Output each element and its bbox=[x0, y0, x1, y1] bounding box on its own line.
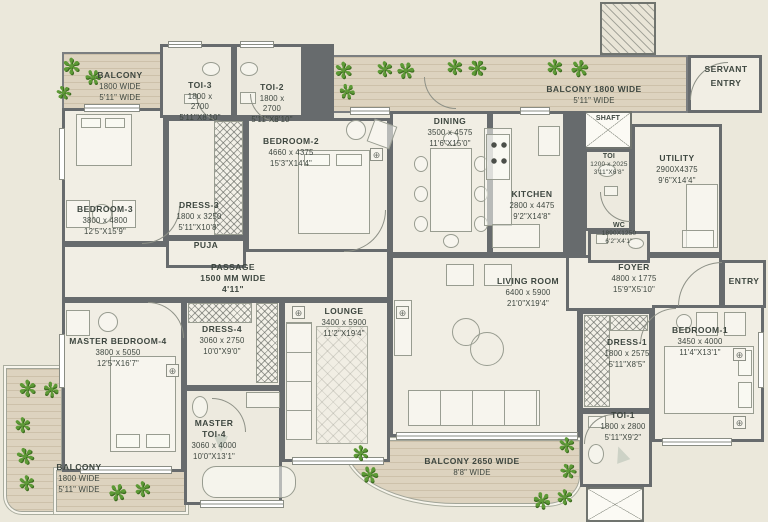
utility-point-icon: ⊕ bbox=[370, 148, 383, 161]
label-entry: ENTRY bbox=[724, 276, 764, 287]
window bbox=[59, 128, 65, 180]
label-dress-1: DRESS-1 1800 x 2575 5'11"X8'5" bbox=[590, 337, 664, 370]
kitchen-counter-icon bbox=[492, 224, 540, 248]
rug-icon bbox=[316, 326, 368, 444]
wardrobe-icon bbox=[188, 303, 252, 323]
label-bedroom-2: BEDROOM-2 4660 x 4375 15'3"X14'4" bbox=[250, 136, 332, 169]
label-bedroom-3: BEDROOM-3 3800 x 4800 12'5"X15'9" bbox=[58, 204, 152, 237]
label-balcony-top: BALCONY 1800 WIDE 5'11" WIDE bbox=[534, 84, 654, 106]
label-toi-3: TOI-3 1800 x 2700 5'11"X8'10" bbox=[178, 80, 222, 123]
wc-icon bbox=[202, 62, 220, 76]
sofa-icon bbox=[286, 322, 312, 440]
side-table-icon bbox=[98, 312, 118, 332]
label-lounge: LOUNGE 3400 x 5900 11'2"X19'4" bbox=[302, 306, 386, 339]
dining-table-icon bbox=[430, 148, 472, 232]
plant-icon: ✻ bbox=[376, 60, 393, 80]
label-toi-2: TOI-2 1800 x 2700 5'11"X8'10" bbox=[250, 82, 294, 125]
label-balcony-top-left: BALCONY 1800 WIDE 5'11" WIDE bbox=[78, 70, 162, 103]
floor-plan: ⊕ ⊕ ⊕ ⊕ ⊕ ⊕ ✻ ✻ ✻ ✻ ✻ ✻ ✻ ✻ ✻ ✻ ✻ ✻ ✻ ✻ … bbox=[0, 0, 768, 522]
plant-icon: ✻ bbox=[558, 436, 575, 456]
label-shaft: SHAFT bbox=[588, 114, 628, 123]
label-master-bedroom-4: MASTER BEDROOM-4 3800 x 5050 12'5"X16'7" bbox=[62, 336, 174, 369]
dining-chair-icon bbox=[414, 156, 428, 172]
window bbox=[662, 438, 732, 446]
wall-block bbox=[566, 111, 586, 255]
utility-point-icon: ⊕ bbox=[396, 306, 409, 319]
chair-icon bbox=[66, 310, 90, 336]
label-kitchen: KITCHEN 2800 x 4475 9'2"X14'8" bbox=[494, 189, 570, 222]
plant-icon: ✻ bbox=[556, 488, 573, 508]
utility-point-icon: ⊕ bbox=[733, 416, 746, 429]
label-puja: PUJA bbox=[186, 240, 226, 251]
wc-icon bbox=[192, 396, 208, 418]
wall-block bbox=[304, 44, 334, 118]
plant-icon: ✻ bbox=[446, 58, 463, 78]
label-living-room: LIVING ROOM 6400 x 5900 21'0"X19'4" bbox=[476, 276, 580, 309]
shaft-bottom-right bbox=[586, 487, 644, 522]
window bbox=[168, 41, 202, 48]
coffee-table-icon bbox=[470, 332, 504, 366]
label-toi-1: TOI-1 1800 x 2800 5'11"X9'2" bbox=[600, 410, 646, 443]
duct-hatch-top-right bbox=[600, 2, 656, 55]
stool-icon bbox=[682, 230, 714, 248]
wc-icon bbox=[588, 444, 604, 464]
window bbox=[520, 107, 550, 115]
chair-icon bbox=[346, 120, 366, 140]
label-dress-3: DRESS-3 1800 x 3250 5'11"X10'8" bbox=[170, 200, 228, 233]
window bbox=[396, 432, 578, 440]
pillow-icon bbox=[116, 434, 140, 448]
label-bedroom-1: BEDROOM-1 3450 x 4000 11'4"X13'1" bbox=[654, 325, 746, 358]
label-balcony-bottom: BALCONY 2650 WIDE 8'8" WIDE bbox=[392, 456, 552, 478]
plant-icon: ✻ bbox=[14, 416, 31, 436]
plant-icon: ✻ bbox=[18, 378, 36, 400]
armchair-icon bbox=[446, 264, 474, 286]
bathtub-icon bbox=[202, 466, 296, 498]
pillow-icon bbox=[738, 382, 752, 408]
plant-icon: ✻ bbox=[546, 58, 563, 78]
fridge-icon bbox=[538, 126, 560, 156]
window bbox=[200, 500, 284, 508]
pillow-icon bbox=[146, 434, 170, 448]
plant-icon: ✻ bbox=[334, 60, 352, 82]
dining-chair-icon bbox=[443, 234, 459, 248]
label-dress-4: DRESS-4 3060 x 2750 10'0"X9'0" bbox=[184, 324, 260, 357]
label-balcony-bottom-left: BALCONY 1800 WIDE 5'11" WIDE bbox=[40, 462, 118, 495]
label-passage: PASSAGE 1500 MM WIDE 4'11" bbox=[192, 262, 274, 295]
label-dining: DINING 3500 x 4575 11'6"X15'0" bbox=[408, 116, 492, 149]
window bbox=[84, 104, 140, 112]
pillow-icon bbox=[105, 118, 125, 128]
label-servant-entry: SERVANT ENTRY bbox=[700, 62, 752, 91]
label-toi-servant: TOI 1200 x 2025 3'11"X6'8" bbox=[590, 152, 628, 178]
label-master-toi-4: MASTER TOI-4 3060 x 4000 10'0"X13'1" bbox=[190, 418, 238, 462]
wc-icon bbox=[240, 62, 258, 76]
window bbox=[758, 332, 764, 388]
window bbox=[350, 107, 390, 115]
label-foyer: FOYER 4800 x 1775 15'9"X5'10" bbox=[590, 262, 678, 295]
window bbox=[240, 41, 274, 48]
label-wc: WC 1890X1250 6'2"X4'1" bbox=[592, 221, 646, 247]
sofa-icon bbox=[408, 390, 540, 426]
plant-icon: ✻ bbox=[18, 474, 35, 494]
plant-icon: ✻ bbox=[134, 480, 151, 500]
dining-chair-icon bbox=[414, 216, 428, 232]
pillow-icon bbox=[81, 118, 101, 128]
dining-chair-icon bbox=[414, 186, 428, 202]
pillow-icon bbox=[336, 154, 362, 166]
label-utility: UTILITY 2900X4375 9'6"X14'4" bbox=[636, 153, 718, 186]
basin-icon bbox=[246, 392, 280, 408]
